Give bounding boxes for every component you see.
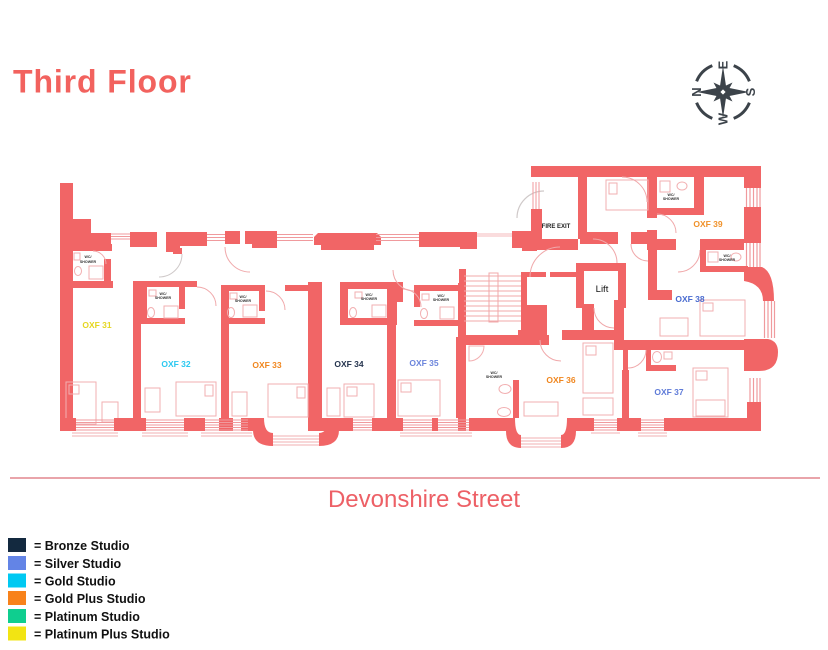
svg-text:E: E — [716, 60, 731, 69]
svg-text:OXF 38: OXF 38 — [675, 294, 705, 304]
svg-text:SHOWER: SHOWER — [433, 298, 450, 302]
svg-text:SHOWER: SHOWER — [80, 260, 97, 264]
svg-text:= Gold Studio: = Gold Studio — [34, 575, 116, 589]
svg-text:= Bronze Studio: = Bronze Studio — [34, 539, 130, 553]
svg-text:= Platinum Plus Studio: = Platinum Plus Studio — [34, 628, 170, 642]
svg-text:Lift: Lift — [596, 284, 609, 295]
svg-text:OXF 34: OXF 34 — [334, 359, 364, 369]
svg-text:= Platinum Studio: = Platinum Studio — [34, 610, 140, 624]
svg-text:SHOWER: SHOWER — [155, 296, 172, 300]
svg-text:Third Floor: Third Floor — [13, 64, 192, 100]
svg-text:N: N — [689, 87, 704, 96]
svg-text:SHOWER: SHOWER — [663, 197, 680, 201]
svg-text:= Silver Studio: = Silver Studio — [34, 557, 122, 571]
svg-text:OXF 37: OXF 37 — [654, 387, 684, 397]
svg-text:W: W — [716, 112, 731, 125]
svg-text:OXF 39: OXF 39 — [693, 219, 723, 229]
svg-text:OXF 31: OXF 31 — [82, 320, 112, 330]
svg-text:= Gold Plus Studio: = Gold Plus Studio — [34, 592, 146, 606]
svg-text:OXF 32: OXF 32 — [161, 359, 191, 369]
svg-text:SHOWER: SHOWER — [719, 258, 736, 262]
svg-text:SHOWER: SHOWER — [361, 297, 378, 301]
svg-text:OXF 33: OXF 33 — [252, 360, 282, 370]
svg-text:S: S — [743, 87, 758, 96]
svg-text:Devonshire Street: Devonshire Street — [328, 486, 520, 513]
svg-text:SHOWER: SHOWER — [486, 375, 503, 379]
svg-text:OXF 36: OXF 36 — [546, 375, 576, 385]
svg-text:OXF 35: OXF 35 — [409, 358, 439, 368]
svg-text:SHOWER: SHOWER — [235, 299, 252, 303]
svg-text:WC/: WC/ — [85, 255, 92, 259]
svg-text:FIRE EXIT: FIRE EXIT — [542, 224, 571, 230]
